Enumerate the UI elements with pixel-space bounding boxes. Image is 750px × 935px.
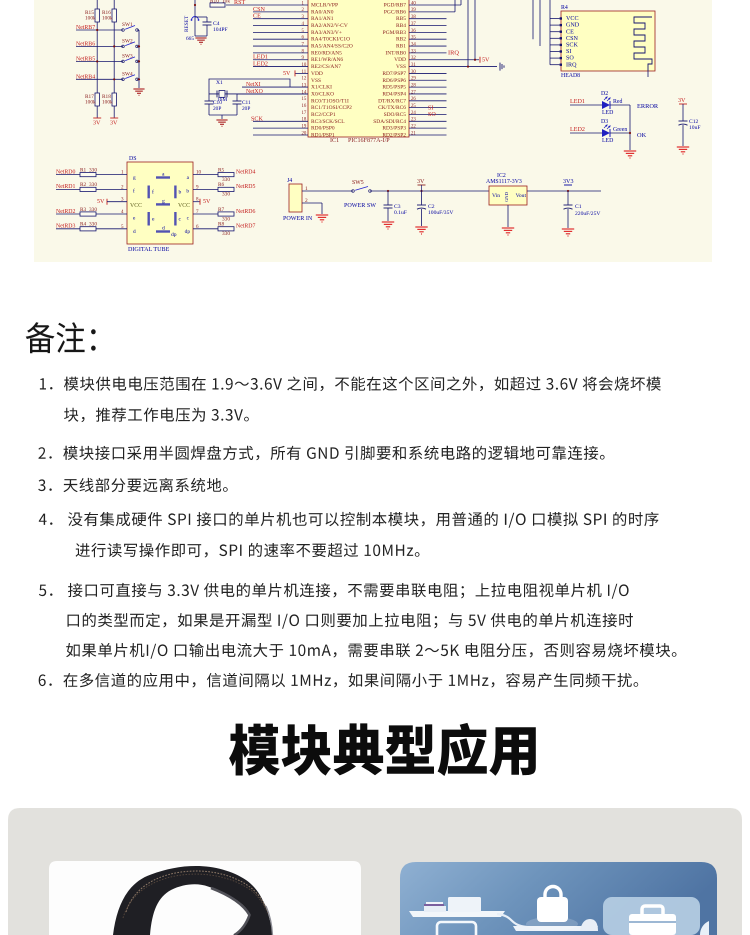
svg-text:5V: 5V bbox=[203, 199, 211, 205]
svg-text:RB5: RB5 bbox=[396, 16, 406, 22]
svg-text:AMS1117-3V3: AMS1117-3V3 bbox=[486, 179, 522, 185]
svg-text:36: 36 bbox=[411, 29, 416, 34]
svg-text:C1: C1 bbox=[575, 204, 582, 210]
svg-text:d: d bbox=[133, 229, 136, 235]
svg-text:100k: 100k bbox=[85, 16, 96, 22]
svg-text:SW2: SW2 bbox=[122, 39, 133, 45]
svg-text:SCK: SCK bbox=[566, 43, 578, 49]
svg-text:RA2/AN2/V-CV: RA2/AN2/V-CV bbox=[311, 23, 348, 29]
svg-text:R4: R4 bbox=[561, 5, 568, 11]
svg-text:RD5/PSP5: RD5/PSP5 bbox=[382, 85, 406, 91]
svg-text:VCC: VCC bbox=[178, 203, 190, 209]
svg-text:DS: DS bbox=[129, 156, 136, 162]
svg-text:RD3/PSP3: RD3/PSP3 bbox=[382, 126, 406, 132]
svg-text:CE: CE bbox=[566, 29, 574, 35]
svg-text:RD7/PSP7: RD7/PSP7 bbox=[382, 71, 406, 77]
svg-text:330: 330 bbox=[89, 222, 97, 228]
svg-text:RA0/AN0: RA0/AN0 bbox=[311, 9, 334, 15]
svg-text:DT/RX/RC7: DT/RX/RC7 bbox=[378, 98, 406, 104]
svg-text:VCC: VCC bbox=[566, 16, 579, 22]
svg-text:RC0/T1OSO/T1I: RC0/T1OSO/T1I bbox=[311, 98, 349, 104]
svg-text:D3: D3 bbox=[601, 119, 608, 125]
svg-text:17: 17 bbox=[302, 111, 307, 116]
svg-text:5V: 5V bbox=[283, 71, 291, 77]
svg-text:LED: LED bbox=[602, 110, 613, 116]
svg-text:DIGITAL TUBE: DIGITAL TUBE bbox=[128, 247, 170, 253]
svg-text:ERROR: ERROR bbox=[637, 103, 659, 110]
svg-text:Vin: Vin bbox=[492, 193, 500, 199]
svg-text:dp: dp bbox=[171, 232, 177, 238]
svg-text:330: 330 bbox=[89, 182, 97, 188]
svg-text:CE: CE bbox=[253, 14, 261, 20]
svg-text:0.1uF: 0.1uF bbox=[394, 210, 407, 216]
svg-text:CSN: CSN bbox=[566, 36, 578, 42]
svg-text:IRQ: IRQ bbox=[566, 62, 577, 68]
svg-text:27: 27 bbox=[411, 90, 416, 95]
svg-text:3V: 3V bbox=[417, 179, 425, 185]
svg-text:RA4/T0CKI/C1O: RA4/T0CKI/C1O bbox=[311, 37, 350, 43]
svg-text:RC2/CCP1: RC2/CCP1 bbox=[311, 112, 336, 118]
svg-text:26: 26 bbox=[411, 97, 416, 102]
svg-text:SI: SI bbox=[566, 49, 571, 55]
svg-text:29: 29 bbox=[411, 77, 416, 82]
svg-text:RE1/WR/AN6: RE1/WR/AN6 bbox=[311, 57, 343, 63]
svg-text:dp: dp bbox=[185, 229, 191, 235]
svg-text:b: b bbox=[186, 189, 189, 195]
svg-text:RB4: RB4 bbox=[396, 23, 406, 29]
svg-text:RD6/PSP6: RD6/PSP6 bbox=[382, 78, 406, 84]
svg-text:RE2/CS/AN7: RE2/CS/AN7 bbox=[311, 64, 341, 70]
svg-text:665: 665 bbox=[186, 36, 194, 42]
svg-text:104PF: 104PF bbox=[213, 27, 228, 33]
svg-text:25: 25 bbox=[411, 104, 416, 109]
svg-text:R4: R4 bbox=[80, 222, 87, 228]
svg-text:RA1/AN1: RA1/AN1 bbox=[311, 16, 334, 22]
svg-text:SW4: SW4 bbox=[122, 72, 133, 78]
svg-text:35: 35 bbox=[411, 36, 416, 41]
svg-text:VDD: VDD bbox=[311, 71, 323, 77]
svg-text:10uF: 10uF bbox=[689, 125, 700, 131]
svg-text:3V3: 3V3 bbox=[563, 179, 574, 185]
svg-text:5V: 5V bbox=[97, 199, 105, 205]
svg-text:b: b bbox=[179, 190, 182, 196]
svg-text:330: 330 bbox=[89, 167, 97, 173]
svg-text:100uF/35V: 100uF/35V bbox=[428, 210, 453, 216]
svg-text:SI: SI bbox=[428, 105, 433, 111]
svg-text:g: g bbox=[133, 175, 136, 181]
svg-text:R7: R7 bbox=[218, 207, 225, 213]
svg-text:SW3: SW3 bbox=[122, 54, 133, 60]
svg-text:VSS: VSS bbox=[311, 78, 321, 84]
svg-text:CSN: CSN bbox=[253, 7, 265, 13]
svg-text:33: 33 bbox=[411, 49, 416, 54]
svg-text:Green: Green bbox=[613, 127, 627, 133]
svg-text:2: 2 bbox=[305, 198, 308, 204]
svg-text:IRQ: IRQ bbox=[448, 49, 459, 56]
svg-text:20P: 20P bbox=[213, 106, 221, 112]
svg-text:330: 330 bbox=[89, 207, 97, 213]
svg-text:PIC16F877A-I/P: PIC16F877A-I/P bbox=[348, 138, 390, 144]
svg-text:POWER IN: POWER IN bbox=[283, 216, 313, 222]
svg-text:MCLR/VPP: MCLR/VPP bbox=[311, 3, 338, 9]
svg-text:13: 13 bbox=[302, 84, 307, 89]
svg-text:RC3/SCK/SCL: RC3/SCK/SCL bbox=[311, 119, 345, 125]
svg-text:RA5/AN4/SS/C2O: RA5/AN4/SS/C2O bbox=[311, 44, 353, 50]
svg-text:HEAD8: HEAD8 bbox=[561, 73, 580, 79]
svg-text:SDO/RC5: SDO/RC5 bbox=[384, 112, 407, 118]
svg-text:21: 21 bbox=[411, 131, 416, 136]
svg-text:RB1: RB1 bbox=[396, 44, 406, 50]
svg-text:R3: R3 bbox=[80, 207, 87, 213]
svg-text:Red: Red bbox=[613, 99, 622, 105]
svg-text:SDA/SDI/RC4: SDA/SDI/RC4 bbox=[373, 119, 406, 125]
svg-text:3V: 3V bbox=[93, 121, 101, 127]
svg-text:VSS: VSS bbox=[396, 64, 406, 70]
svg-text:GND: GND bbox=[504, 191, 509, 202]
svg-text:16: 16 bbox=[302, 104, 307, 109]
svg-text:CK/TX/RC6: CK/TX/RC6 bbox=[378, 105, 406, 111]
svg-text:100k: 100k bbox=[102, 100, 113, 106]
svg-text:20: 20 bbox=[302, 131, 307, 136]
svg-text:X1: X1 bbox=[216, 80, 223, 86]
svg-text:RESET: RESET bbox=[184, 15, 190, 32]
svg-text:12: 12 bbox=[302, 77, 307, 82]
svg-text:18: 18 bbox=[302, 118, 307, 123]
svg-text:28: 28 bbox=[411, 84, 416, 89]
svg-text:100k: 100k bbox=[102, 16, 113, 22]
svg-text:R2: R2 bbox=[80, 182, 87, 188]
svg-text:IC1: IC1 bbox=[330, 138, 339, 144]
svg-text:11: 11 bbox=[302, 70, 307, 75]
svg-text:38: 38 bbox=[411, 15, 416, 20]
svg-text:RD4/PSP4: RD4/PSP4 bbox=[382, 91, 406, 97]
svg-text:NetRD5: NetRD5 bbox=[236, 184, 256, 190]
svg-text:R1: R1 bbox=[80, 167, 87, 173]
svg-text:330: 330 bbox=[222, 231, 230, 237]
svg-text:10k: 10k bbox=[222, 0, 230, 5]
svg-text:SO: SO bbox=[566, 56, 574, 62]
svg-text:g: g bbox=[162, 199, 165, 205]
svg-text:40: 40 bbox=[411, 1, 416, 6]
svg-text:RD0/PSP0: RD0/PSP0 bbox=[311, 126, 335, 132]
svg-text:PGD/RB7: PGD/RB7 bbox=[384, 3, 407, 9]
svg-text:R5: R5 bbox=[218, 167, 225, 173]
svg-text:RC1/T1OSI/CCP2: RC1/T1OSI/CCP2 bbox=[311, 105, 352, 111]
svg-text:D2: D2 bbox=[601, 91, 608, 97]
svg-text:X0/CLKO: X0/CLKO bbox=[311, 91, 334, 97]
svg-text:R6: R6 bbox=[218, 182, 225, 188]
svg-text:30: 30 bbox=[411, 70, 416, 75]
svg-text:VCC: VCC bbox=[130, 203, 142, 209]
svg-text:LED1: LED1 bbox=[570, 99, 585, 105]
svg-text:LED: LED bbox=[602, 138, 613, 144]
svg-text:OK: OK bbox=[637, 132, 647, 139]
svg-text:3V: 3V bbox=[110, 121, 118, 127]
svg-text:23: 23 bbox=[411, 118, 416, 123]
svg-text:RA3/AN3/V+: RA3/AN3/V+ bbox=[311, 30, 342, 36]
svg-text:SO: SO bbox=[428, 112, 436, 118]
svg-text:GND: GND bbox=[566, 23, 580, 29]
svg-text:10: 10 bbox=[196, 170, 202, 176]
svg-text:POWER SW: POWER SW bbox=[344, 203, 376, 209]
svg-text:330: 330 bbox=[222, 192, 230, 198]
svg-text:NetRD4: NetRD4 bbox=[236, 169, 256, 175]
svg-text:RE0/RD/AN5: RE0/RD/AN5 bbox=[311, 50, 342, 56]
svg-text:37: 37 bbox=[411, 22, 416, 27]
svg-text:Vout: Vout bbox=[516, 193, 527, 199]
svg-text:15: 15 bbox=[302, 97, 307, 102]
svg-text:32: 32 bbox=[411, 56, 416, 61]
svg-text:VDD: VDD bbox=[394, 57, 406, 63]
svg-text:PGM/RB3: PGM/RB3 bbox=[383, 30, 407, 36]
svg-text:24: 24 bbox=[411, 111, 416, 116]
svg-text:1: 1 bbox=[305, 186, 308, 192]
svg-text:LED2: LED2 bbox=[253, 62, 268, 68]
svg-text:PGC/RB6: PGC/RB6 bbox=[384, 9, 406, 15]
svg-text:NetRD6: NetRD6 bbox=[236, 209, 256, 215]
svg-text:22: 22 bbox=[411, 125, 416, 130]
svg-text:d: d bbox=[162, 226, 165, 232]
svg-text:100k: 100k bbox=[85, 100, 96, 106]
svg-text:SW5: SW5 bbox=[352, 180, 364, 186]
svg-text:10: 10 bbox=[302, 63, 307, 68]
svg-text:34: 34 bbox=[411, 42, 416, 47]
svg-text:LED2: LED2 bbox=[570, 127, 585, 133]
svg-text:X1/CLKI: X1/CLKI bbox=[311, 85, 332, 91]
svg-text:NetRD7: NetRD7 bbox=[236, 224, 256, 230]
svg-text:R10: R10 bbox=[210, 0, 219, 5]
svg-text:J4: J4 bbox=[287, 178, 292, 184]
svg-text:LED1: LED1 bbox=[253, 55, 268, 61]
svg-text:SCK: SCK bbox=[251, 116, 263, 122]
svg-text:31: 31 bbox=[411, 63, 416, 68]
svg-text:5V: 5V bbox=[482, 58, 490, 64]
svg-text:20P: 20P bbox=[242, 106, 250, 112]
svg-text:RB2: RB2 bbox=[396, 37, 406, 43]
svg-text:f: f bbox=[133, 188, 135, 195]
svg-text:39: 39 bbox=[411, 8, 416, 13]
svg-text:SW1: SW1 bbox=[122, 22, 133, 28]
svg-text:f: f bbox=[152, 189, 154, 196]
svg-text:R8: R8 bbox=[218, 222, 225, 228]
svg-text:3V: 3V bbox=[678, 98, 686, 104]
svg-text:14: 14 bbox=[302, 90, 307, 95]
svg-text:220uF/25V: 220uF/25V bbox=[575, 211, 600, 217]
svg-text:19: 19 bbox=[302, 125, 307, 130]
svg-text:INT/RB0: INT/RB0 bbox=[385, 50, 406, 56]
